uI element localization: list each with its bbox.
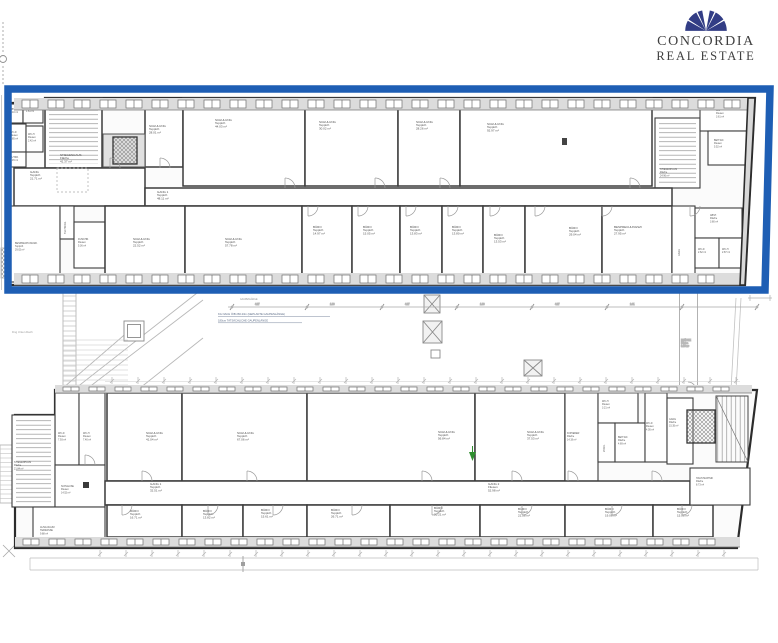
room-wc-h	[79, 393, 105, 465]
shaft-marker	[83, 482, 89, 488]
lift-shaft-lower	[687, 410, 715, 443]
floorplan-drawing: 4.271.804.271.804.272.41 BRÜCKEFläche9.6…	[0, 0, 778, 643]
room-label: TECHNIKR.	[64, 221, 67, 234]
upper-wing: ABST.1.10 m²VORR.1.61 m²WC-DFliesen2.85 …	[8, 98, 755, 285]
room-schulung	[398, 98, 460, 186]
room-abst-	[695, 208, 742, 238]
dim-value: 4.27	[405, 304, 410, 306]
dim-value: 2.41	[630, 304, 635, 306]
room-schulung	[105, 206, 185, 282]
bridge-label: BRÜCKEFläche9.60 m²	[681, 339, 691, 348]
room-vorr-	[598, 423, 615, 462]
lift-cab-upper	[113, 137, 137, 164]
room-b-ro	[307, 505, 390, 537]
room-schulung	[475, 393, 565, 481]
room-gang-1	[145, 188, 672, 206]
logo-fan-icon	[680, 8, 732, 32]
window-band	[14, 98, 748, 110]
room-b-ro	[243, 505, 307, 537]
dim-value: 1.80	[330, 304, 335, 306]
room-schulung	[107, 393, 182, 481]
dim-value: 4.27	[255, 304, 260, 306]
room-besprechungszi	[602, 206, 672, 282]
room-haustechnik	[690, 468, 750, 505]
concordia-logo: CONCORDIA REAL ESTATE	[646, 8, 766, 63]
room-b-ro	[352, 206, 400, 282]
lower-wing: WC-DFliesen7.93 m²WC-HFliesen7.40 m²SCHU…	[12, 377, 758, 572]
room-schulung	[185, 206, 302, 282]
courtyard-left-label: Dng Unten Dach	[12, 330, 33, 334]
dim-value: 1.80	[480, 304, 485, 306]
room-schulung	[145, 103, 183, 167]
room-b-ro	[400, 206, 442, 282]
room-label: GANG 1Teppich32.51 m²	[150, 482, 162, 492]
room-b-ro	[442, 206, 483, 282]
room-schulung	[460, 98, 652, 186]
room-technikr-	[60, 206, 74, 239]
note-line-2: 180cm TATSÄCHLICHE GAUPENLÄNGE	[218, 319, 268, 323]
room-b-ro	[107, 505, 182, 537]
dim-title: GAUPENLÄNGE	[240, 298, 258, 301]
room-b-ro	[525, 206, 602, 282]
room-gang-1	[105, 481, 690, 505]
note-line-1: KG NACH ÖIB 266.23m (GEPLANTE GAUPENLÄNG…	[218, 312, 285, 316]
room-label: GANG	[678, 249, 681, 256]
brand-line-2: REAL ESTATE	[646, 49, 766, 63]
column	[562, 138, 567, 145]
room-schulung	[305, 98, 398, 186]
room-b-ro	[483, 206, 525, 282]
room-b-ro	[302, 206, 352, 282]
room-schulung	[183, 98, 305, 186]
room-b-ro	[182, 505, 243, 537]
room-label: VORR.	[603, 444, 606, 452]
floorplan-page: 4.271.804.271.804.272.41 BRÜCKEFläche9.6…	[0, 0, 778, 643]
room-label: GANG 1Teppich48.11 m²	[157, 190, 169, 200]
dim-value: 4.27	[555, 304, 560, 306]
room-wc-d	[55, 393, 79, 465]
brand-line-1: CONCORDIA	[646, 35, 766, 49]
